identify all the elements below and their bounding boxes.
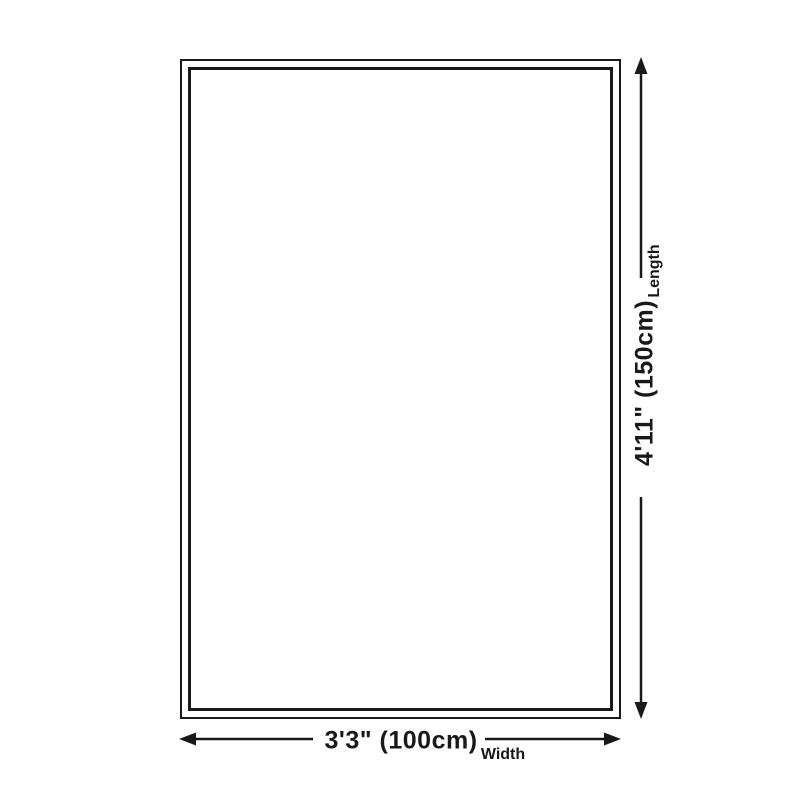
arrow-left-icon	[179, 733, 196, 746]
width-value: 3'3" (100cm)	[324, 727, 477, 756]
size-diagram: 4'11" (150cm) Length 3'3" (100cm) Width	[0, 0, 800, 800]
arrow-right-icon	[604, 733, 621, 746]
product-rectangle	[180, 59, 621, 719]
width-label: Width	[481, 746, 525, 764]
arrow-up-icon	[635, 57, 648, 74]
arrow-down-icon	[635, 702, 648, 719]
product-rectangle-inner-border	[188, 67, 613, 711]
length-value: 4'11" (150cm)	[631, 300, 660, 466]
length-label: Length	[646, 244, 664, 297]
